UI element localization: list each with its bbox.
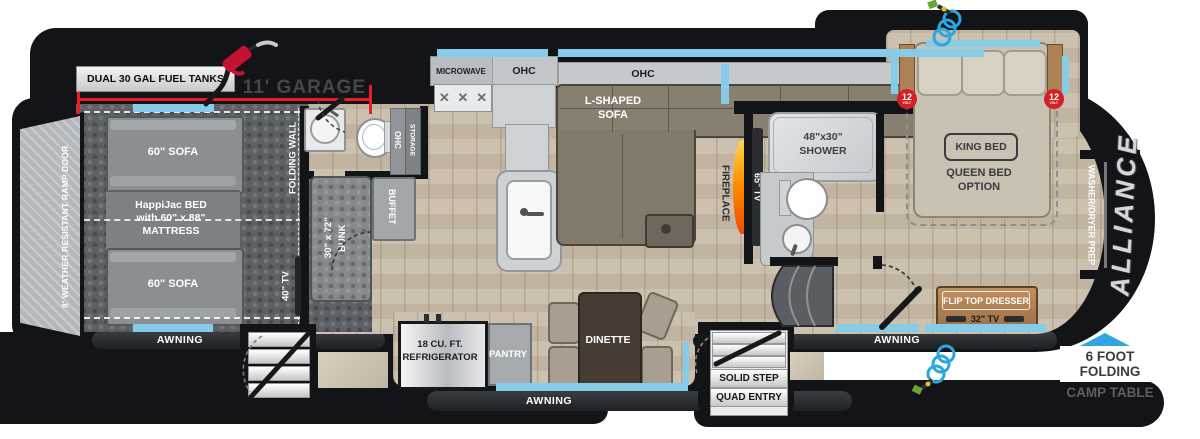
- fridge-label-line2: REFRIGERATOR: [401, 351, 479, 364]
- l-sofa-label-line2: SOFA: [560, 108, 666, 122]
- bunk-label-line1: 30" x 72": [322, 192, 335, 284]
- fridge-handle: [424, 314, 429, 323]
- folding-wall-label: FOLDING WALL: [286, 108, 300, 208]
- halfbath-vanity: [304, 108, 346, 152]
- sofa-back-cushion: [110, 252, 236, 262]
- slide-topper-strip: [891, 56, 898, 94]
- garage-dim-label: 11' GARAGE: [220, 77, 366, 95]
- ramp-door-label: 8' WEATHER RESISTANT RAMP DOOR: [58, 122, 72, 332]
- patio-pad-rear: [318, 352, 388, 388]
- sofa-ottoman: [645, 214, 694, 248]
- queen-option-line1: QUEEN BED: [920, 166, 1038, 180]
- hall-storage-label: STORAGE: [407, 111, 417, 169]
- entry-step-label-bar: QUAD ENTRY: [710, 388, 788, 407]
- floorplan-canvas: AWNING AWNING AWNING 8' WEATHER RESISTAN…: [0, 0, 1200, 439]
- garage-tv: [295, 256, 301, 316]
- garage-dim-line: [78, 98, 372, 101]
- ottoman-cupholder: [661, 224, 671, 234]
- slide-topper-strip: [133, 104, 214, 112]
- dresser-tv-bar-right: [1004, 316, 1024, 322]
- happijac-line1: HappiJac BED: [106, 198, 236, 211]
- king-bed-label: KING BED: [955, 141, 1006, 153]
- sofa-back-cushion: [110, 120, 236, 130]
- slide-topper-strip: [721, 64, 729, 104]
- burner-icon: ✕: [476, 90, 487, 106]
- volt-badge-sub: VOLT: [903, 102, 912, 105]
- dresser-label-box: FLIP TOP DRESSER: [942, 291, 1030, 310]
- camp-table-line3: CAMP TABLE: [1056, 385, 1164, 400]
- volt-badge-sub: VOLT: [1050, 102, 1059, 105]
- slide-topper-strip: [1062, 56, 1069, 94]
- slide-topper-strip: [836, 324, 919, 332]
- kitchen-ohc-label: OHC: [493, 63, 555, 79]
- bunk-label-line2: BUNK: [336, 200, 349, 276]
- halfbath-toilet-seat: [362, 124, 386, 150]
- bath-sink: [782, 224, 812, 254]
- kitchen-counter-connector: [505, 124, 549, 174]
- l-sofa-label-line1: L-SHAPED: [560, 94, 666, 108]
- camp-table-arrow: [1080, 333, 1130, 346]
- washer-dryer-label: WASHER/DRYER PREP: [1085, 160, 1098, 270]
- kitchen-ohc: OHC: [492, 56, 558, 86]
- garage-tv-label: 40" TV: [279, 255, 293, 317]
- slide-topper-strip: [437, 49, 548, 57]
- vanity-sink-bowl: [310, 114, 340, 144]
- volt-badge-right: 12 VOLT: [1044, 89, 1064, 109]
- dinette-chair: [641, 346, 673, 388]
- volt-badge-number: 12: [902, 93, 912, 101]
- entry-step: [712, 356, 786, 368]
- happijac-bed: HappiJac BED with 60" x 88" MATTRESS: [106, 190, 240, 252]
- patio-pad-entry: [790, 352, 824, 380]
- dresser-label: FLIP TOP DRESSER: [943, 296, 1029, 306]
- camp-table-line1: 6 FOOT: [1058, 349, 1162, 364]
- burner-icon: ✕: [439, 90, 450, 106]
- shower-label-line2: SHOWER: [770, 144, 876, 158]
- garage-step: [248, 366, 310, 381]
- slide-topper-strip: [133, 324, 213, 332]
- range-cooktop: ✕✕✕: [434, 84, 492, 112]
- slide-topper-strip: [925, 324, 1046, 332]
- buffet-label: BUFFET: [386, 182, 398, 232]
- fridge-handle: [436, 314, 441, 323]
- garage-sofa-front: 60" SOFA: [106, 116, 244, 194]
- bedroom-door-hinge: [873, 256, 882, 269]
- burner-icon: ✕: [458, 90, 469, 106]
- camp-table-line2: FOLDING: [1058, 364, 1162, 379]
- fuel-tanks-label-box: DUAL 30 GAL FUEL TANKS: [76, 66, 235, 92]
- garage-dim-tick-right: [369, 85, 372, 114]
- garage-step: [248, 349, 310, 364]
- buffet: BUFFET: [372, 177, 416, 241]
- slide-topper-strip: [496, 383, 688, 391]
- fuel-tanks-label: DUAL 30 GAL FUEL TANKS: [87, 73, 224, 85]
- entry-step: [712, 344, 786, 356]
- pillow: [1003, 50, 1047, 96]
- volt-badge-number: 12: [1049, 93, 1059, 101]
- slide-topper-strip: [558, 49, 984, 57]
- kitchen-counter: [492, 84, 556, 128]
- hall-ohc-label: OHC: [392, 111, 403, 169]
- awning-main-label: AWNING: [509, 394, 589, 408]
- queen-option-line2: OPTION: [920, 180, 1038, 194]
- entry-step-label-bar: SOLID STEP: [710, 369, 788, 388]
- kitchen-side-wall: [420, 106, 428, 179]
- pantry: PANTRY: [488, 323, 532, 386]
- garage-sofa-front-label: 60" SOFA: [108, 142, 238, 162]
- living-ohc-label: OHC: [613, 66, 673, 82]
- awning-rear-label: AWNING: [140, 333, 220, 347]
- bath-right-wall: [876, 114, 884, 212]
- happijac-track-line: [84, 219, 302, 221]
- dresser-tv-bar-left: [946, 316, 966, 322]
- sofa-seam-v2: [668, 86, 669, 132]
- fireplace-label: FIREPLACE: [718, 148, 732, 238]
- sofa-chaise-seam: [622, 134, 623, 238]
- happijac-line2: with 60" x 88": [106, 211, 236, 224]
- bedroom-steps-wall: [770, 257, 838, 266]
- garage-tiedown-line-bottom: [84, 317, 300, 319]
- garage-step: [248, 332, 310, 347]
- pantry-label: PANTRY: [478, 347, 538, 361]
- refrigerator: 18 CU. FT. REFRIGERATOR: [398, 321, 488, 390]
- garage-sofa-rear-label: 60" SOFA: [108, 274, 238, 294]
- dinette-chair: [548, 346, 580, 388]
- awning-front-label: AWNING: [857, 333, 937, 347]
- king-bed-label-box: KING BED: [944, 133, 1018, 161]
- microwave-label: MICROWAVE: [431, 63, 491, 79]
- entry-step: [712, 332, 786, 344]
- entry-step-label-line1: SOLID STEP: [719, 373, 778, 384]
- microwave-cabinet: MICROWAVE: [430, 56, 494, 86]
- garage-step: [248, 383, 310, 398]
- entry-step-label-line2: QUAD ENTRY: [716, 392, 782, 403]
- happijac-line3: MATTRESS: [106, 224, 236, 237]
- slide-topper-strip: [926, 40, 1040, 47]
- dinette-table: DINETTE: [578, 292, 642, 388]
- slide-topper-strip: [683, 342, 689, 383]
- storage-cabinet: STORAGE: [405, 108, 421, 175]
- fridge-label-line1: 18 CU. FT.: [401, 338, 479, 351]
- volt-badge-left: 12 VOLT: [897, 89, 917, 109]
- dinette-label: DINETTE: [572, 332, 644, 347]
- shower-label-line1: 48"x30": [770, 130, 876, 144]
- garage-sofa-rear: 60" SOFA: [106, 248, 244, 326]
- island-faucet-handle: [526, 212, 544, 216]
- island-sink: [506, 180, 552, 260]
- sofa-front-cushion: [110, 176, 236, 186]
